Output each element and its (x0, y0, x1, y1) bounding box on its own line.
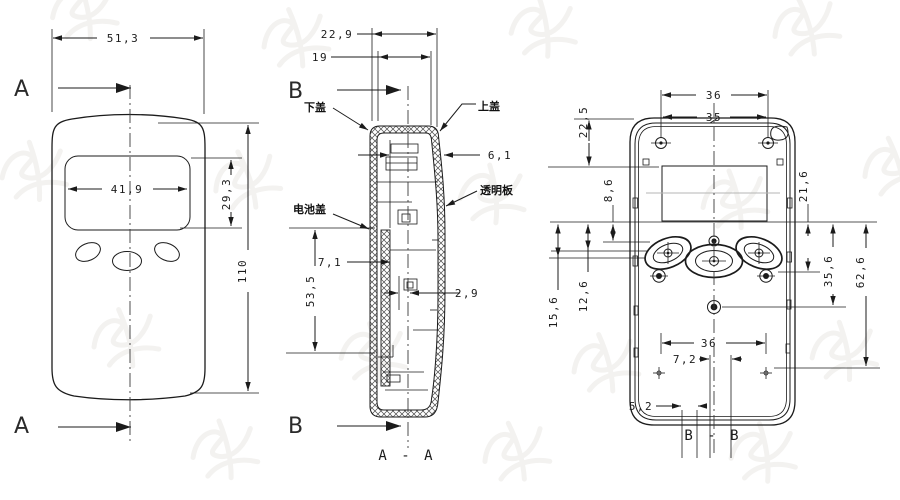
svg-text:电池盖: 电池盖 (293, 202, 326, 216)
dim-screen-width: 41,9 (68, 183, 187, 196)
svg-text:下盖: 下盖 (304, 100, 326, 114)
dim-btn-top: 12,6 (577, 225, 590, 313)
dim-inner-depth: 19 (312, 51, 431, 125)
bb-screw-boss-left (651, 138, 671, 149)
technical-drawing: A A 51,3 41,9 29,3 (0, 0, 900, 500)
section-letter-a-top: A (14, 77, 29, 102)
svg-text:36: 36 (706, 89, 722, 102)
dim-btn-center: 15,6 (547, 225, 560, 329)
battery-wall-section (381, 230, 390, 386)
svg-text:15,6: 15,6 (547, 296, 560, 329)
svg-text:35: 35 (706, 111, 722, 124)
svg-text:41,9: 41,9 (111, 183, 144, 196)
svg-text:53,5: 53,5 (304, 275, 317, 308)
svg-text:2,9: 2,9 (455, 287, 479, 300)
section-bb-title: B - B (684, 428, 741, 444)
svg-text:51,3: 51,3 (107, 32, 140, 45)
section-aa-view: B B 22,9 19 下盖 上盖 (286, 28, 514, 464)
svg-text:110: 110 (236, 259, 249, 283)
dim-slot: 7,2 (673, 353, 742, 366)
svg-text:6,1: 6,1 (488, 149, 512, 162)
dim-battery-depth: 7,1 (318, 256, 390, 269)
svg-text:8,6: 8,6 (602, 178, 615, 202)
button-right (152, 239, 183, 265)
section-letter-b-bottom: B (288, 414, 303, 439)
drawing-sheet: A A 51,3 41,9 29,3 (0, 0, 900, 500)
svg-text:5,2: 5,2 (629, 400, 653, 413)
dim-wall-gap: 2,9 (384, 287, 479, 300)
label-upper-cover: 上盖 (440, 99, 500, 131)
svg-text:7,2: 7,2 (673, 353, 697, 366)
button-left (73, 239, 104, 265)
label-lower-cover: 下盖 (304, 100, 368, 130)
bb-screw-mid-left (650, 270, 668, 282)
button-middle (113, 252, 142, 271)
dim-screen-height: 29,3 (180, 158, 242, 228)
svg-text:22,9: 22,9 (321, 28, 354, 41)
label-transparent-plate: 透明板 (446, 183, 514, 206)
dim-notch: 5,2 (629, 400, 707, 413)
dim-depth: 22,9 (321, 28, 437, 127)
bb-screw-boss-right (758, 138, 778, 149)
section-bb-view: 36 35 22,5 8,6 21,6 (547, 89, 880, 458)
svg-text:19: 19 (312, 51, 328, 64)
svg-text:12,6: 12,6 (577, 280, 590, 313)
dim-lcd-width: 35 (663, 111, 766, 124)
svg-text:62,6: 62,6 (854, 256, 867, 289)
label-battery-cover: 电池盖 (293, 202, 369, 229)
svg-text:7,1: 7,1 (318, 256, 342, 269)
svg-text:22,5: 22,5 (577, 106, 590, 139)
dim-slot-span: 36 (661, 333, 766, 354)
svg-text:21,6: 21,6 (797, 170, 810, 203)
bb-corner-marks (653, 367, 772, 379)
svg-text:36: 36 (701, 337, 717, 350)
svg-text:上盖: 上盖 (478, 99, 500, 113)
front-buttons (73, 239, 183, 271)
svg-text:29,3: 29,3 (220, 178, 233, 211)
dim-front-width: 51,3 (52, 29, 204, 114)
front-view: A A 51,3 41,9 29,3 (14, 29, 259, 442)
section-letter-b-top: B (288, 79, 303, 104)
section-letter-a-bottom: A (14, 414, 29, 439)
dim-top-offset: 22,5 (577, 106, 590, 166)
bb-screw-mid-right (757, 270, 775, 282)
dim-lcd-to-buttons: 8,6 (602, 178, 615, 241)
bb-lanyard-hole (771, 126, 788, 140)
dim-screw-offset: 21,6 (797, 170, 810, 271)
dim-mid-screw: 35,6 (822, 225, 835, 306)
section-aa-title: A - A (378, 448, 435, 464)
svg-text:35,6: 35,6 (822, 255, 835, 288)
svg-text:透明板: 透明板 (480, 183, 514, 197)
